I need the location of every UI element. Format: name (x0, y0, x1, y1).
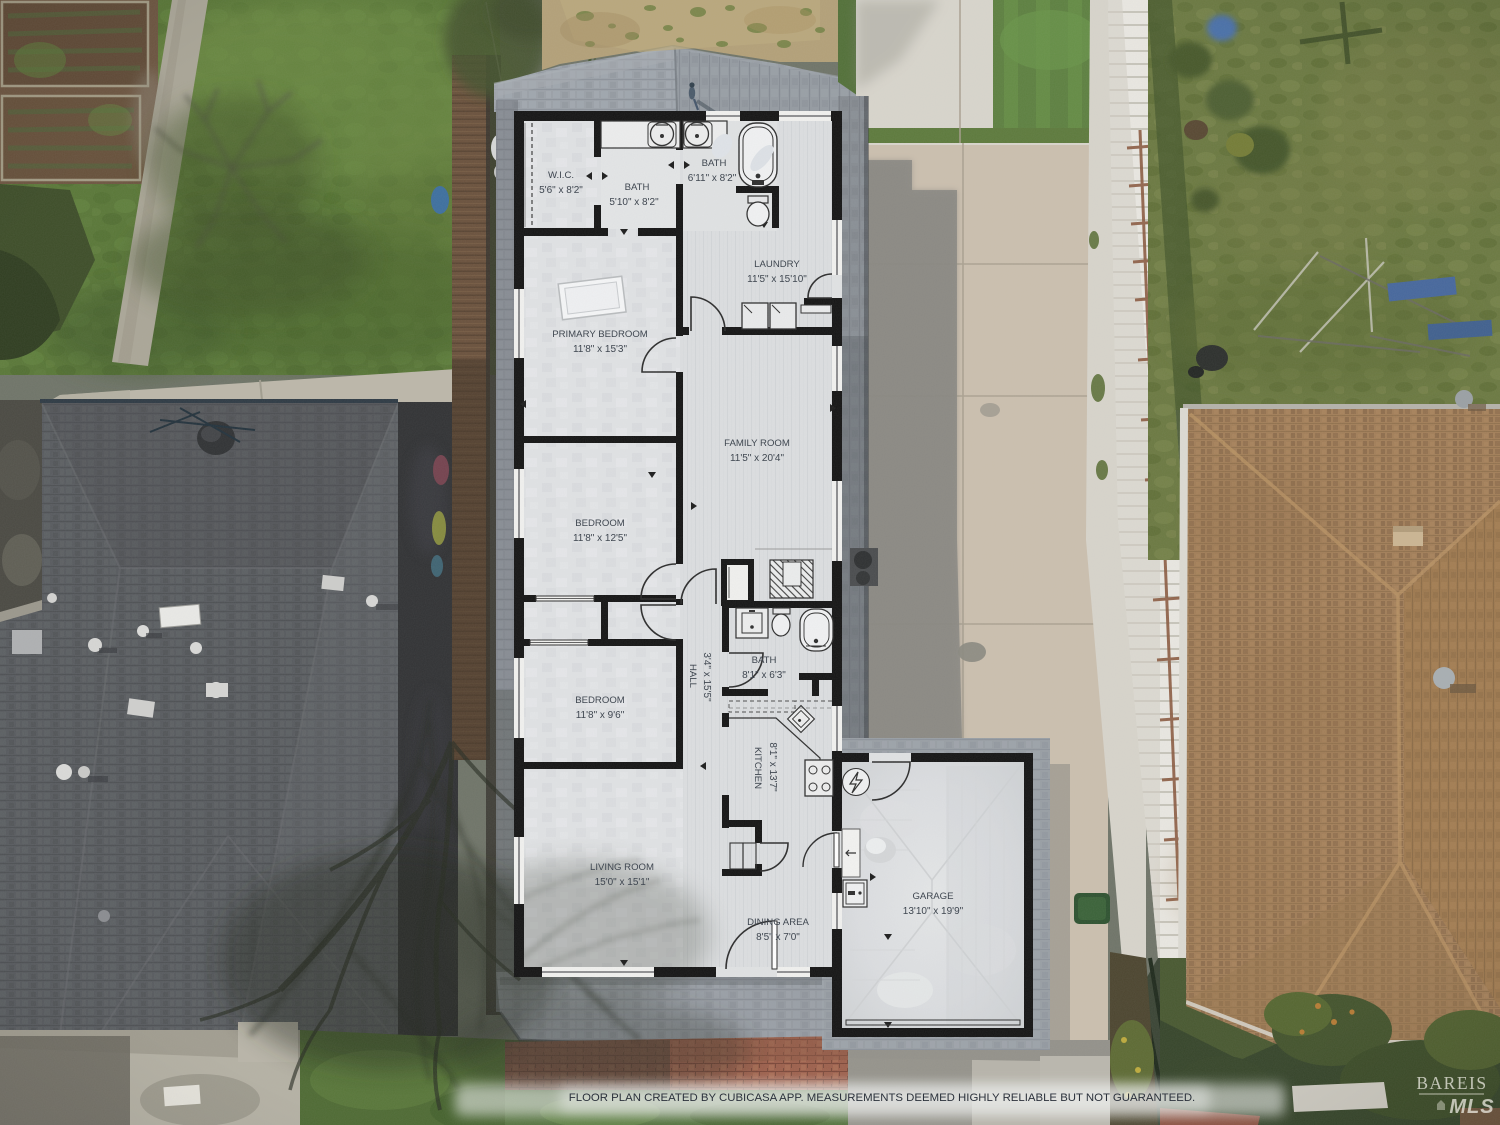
svg-text:BAREIS: BAREIS (1416, 1073, 1487, 1093)
svg-text:MLS: MLS (1449, 1096, 1494, 1118)
svg-text:FLOOR PLAN CREATED BY CUBICASA: FLOOR PLAN CREATED BY CUBICASA APP. MEAS… (569, 1092, 1195, 1104)
